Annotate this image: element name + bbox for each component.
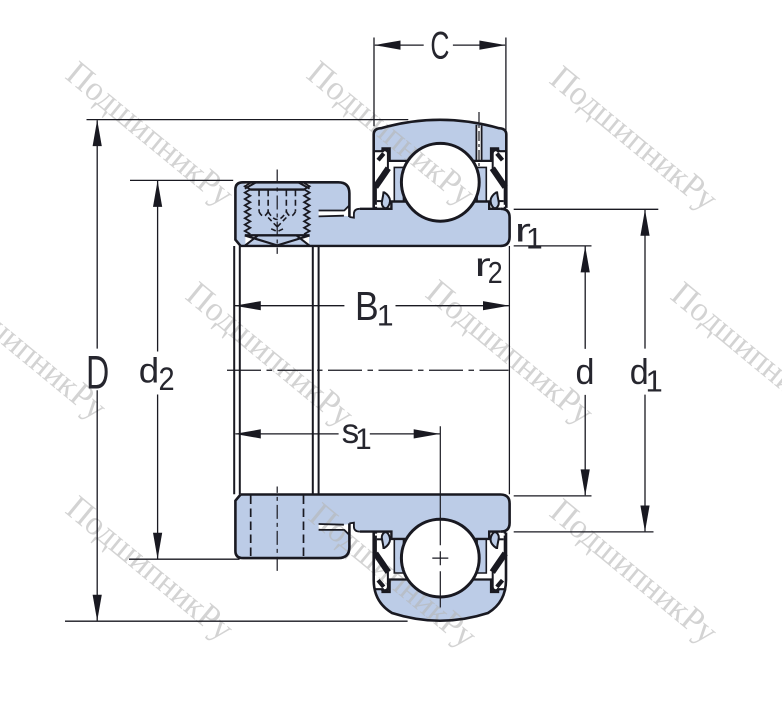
svg-text:C: C: [430, 25, 449, 68]
svg-text:ПодшипникРу: ПодшипникРу: [59, 55, 241, 214]
svg-text:ПодшипникРу: ПодшипникРу: [543, 59, 725, 218]
svg-text:1: 1: [645, 363, 662, 398]
svg-text:1: 1: [377, 300, 394, 333]
svg-text:ПодшипникРу: ПодшипникРу: [179, 275, 361, 434]
svg-text:B: B: [355, 283, 379, 329]
svg-text:2: 2: [488, 256, 503, 290]
svg-text:D: D: [86, 346, 109, 399]
svg-text:1: 1: [526, 223, 543, 256]
svg-text:d: d: [139, 351, 159, 390]
svg-text:ПодшипникРу: ПодшипникРу: [59, 489, 241, 648]
svg-text:d: d: [576, 352, 595, 392]
svg-text:2: 2: [159, 362, 175, 398]
svg-text:ПодшипникРу: ПодшипникРу: [664, 275, 782, 434]
svg-text:ПодшипникРу: ПодшипникРу: [543, 492, 725, 651]
svg-text:1: 1: [355, 423, 372, 456]
